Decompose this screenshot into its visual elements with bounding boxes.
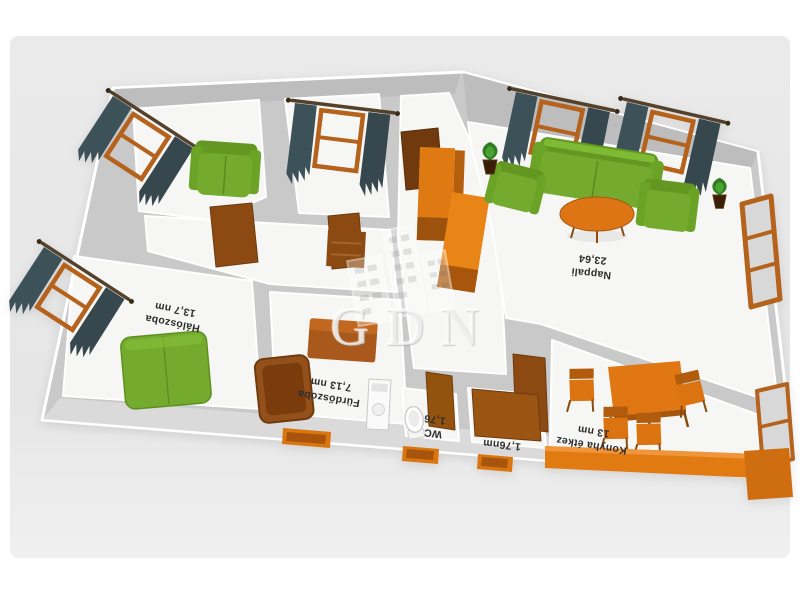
kitchen-counter bbox=[545, 446, 793, 500]
armchair-green-2 bbox=[635, 178, 701, 234]
floorplan-image: Hálószoba 13,7 nm Fürdőszoba 7,13 nm WC … bbox=[0, 0, 800, 600]
coffee-table-oval bbox=[560, 197, 634, 243]
bed-green bbox=[120, 331, 212, 410]
gdn-watermark-text: GDN bbox=[318, 296, 508, 358]
window-right-wall-upper bbox=[742, 196, 780, 307]
door-room-top-left bbox=[210, 203, 258, 267]
loveseat-green bbox=[188, 140, 262, 199]
door-eloter bbox=[472, 389, 541, 441]
